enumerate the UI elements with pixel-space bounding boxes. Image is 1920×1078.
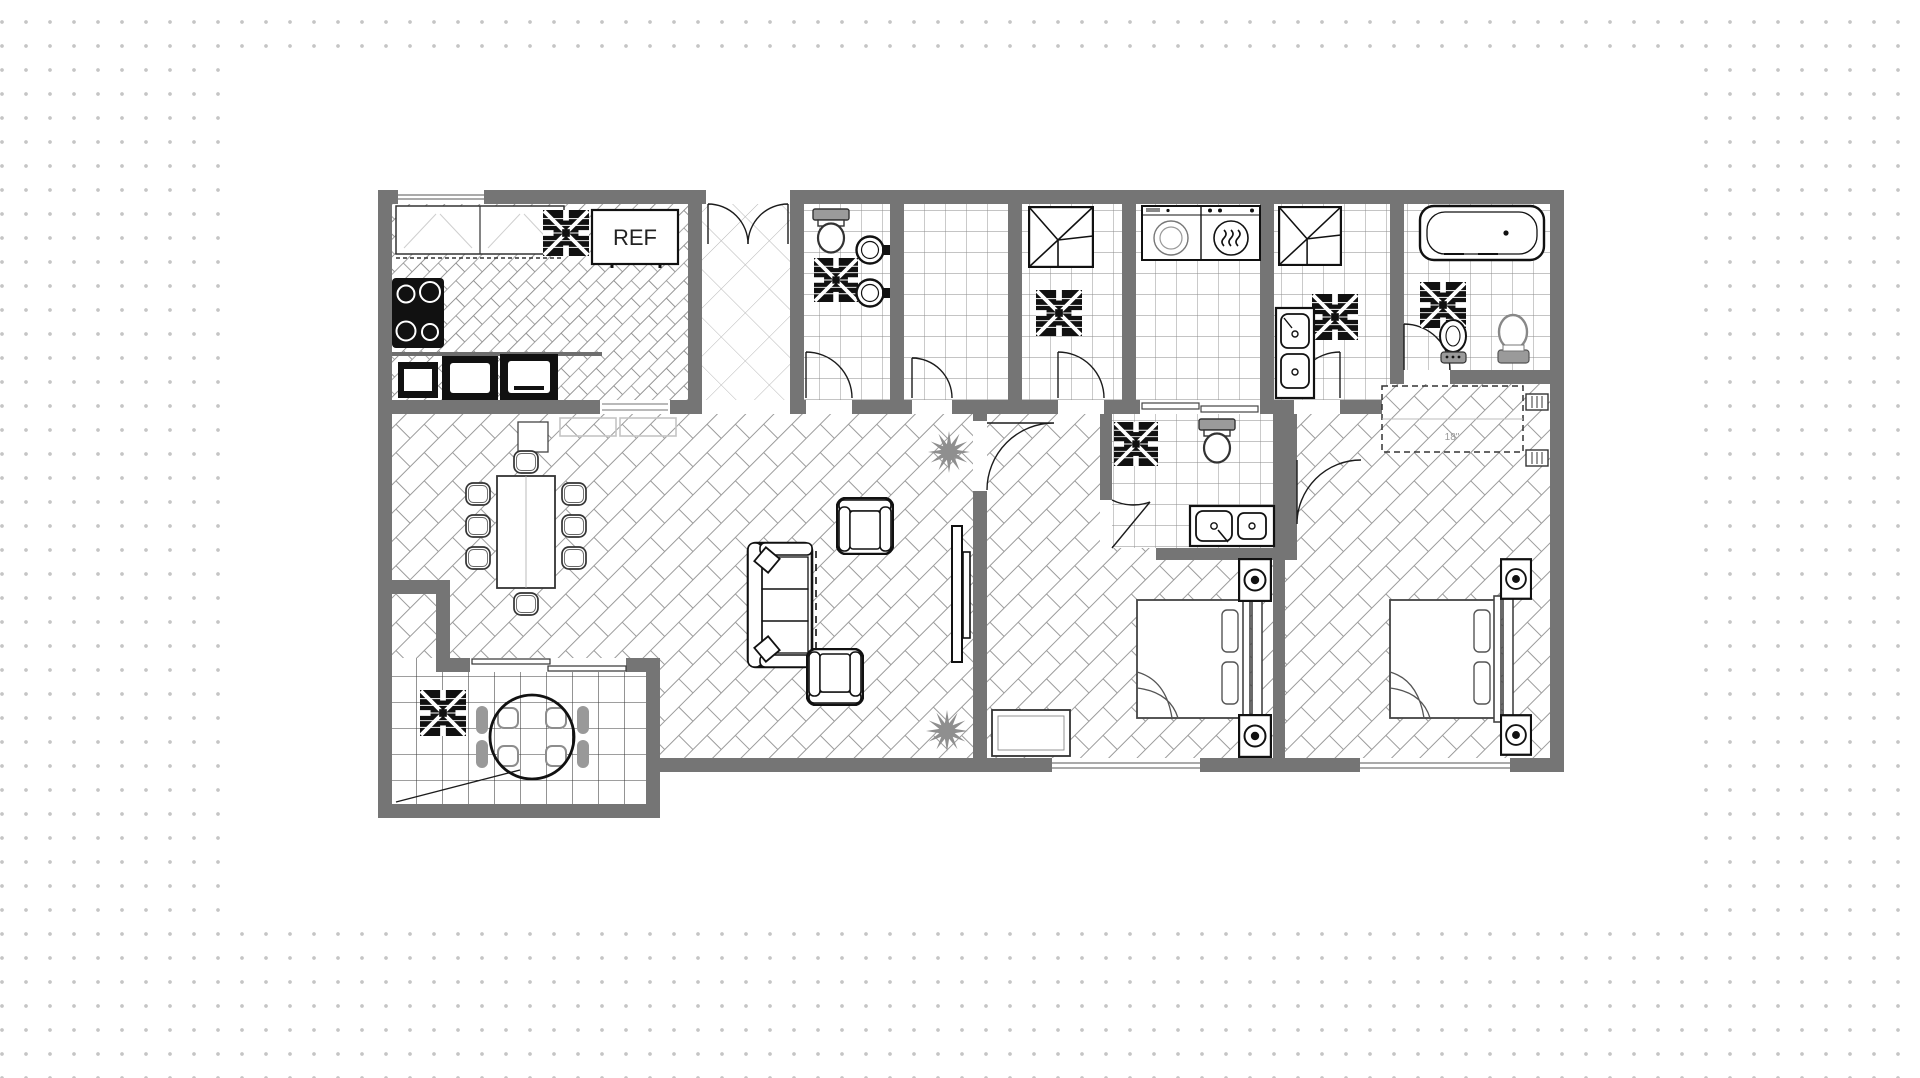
wall-kitchen-right	[688, 204, 702, 414]
sliding-panel-2	[548, 666, 626, 671]
dining-chair	[562, 483, 586, 505]
water-closet-floor	[904, 204, 1008, 400]
dining-chair	[562, 515, 586, 537]
dining-chair	[466, 515, 490, 537]
laundry-bifold-door-left	[1142, 403, 1199, 409]
wall-bath1-right	[890, 204, 904, 414]
shower-stall-symbol	[1279, 207, 1341, 265]
sliding-panel-1	[472, 659, 550, 664]
double-bed	[1137, 594, 1262, 724]
wall-patio-right	[646, 658, 660, 818]
foyer-open-passage	[702, 400, 790, 414]
bathroom-1-ceiling-fan-icon	[814, 258, 858, 302]
bidet-symbol	[1440, 320, 1466, 363]
nightstand-lamp	[1501, 559, 1531, 599]
shower-room-b-ceiling-fan-icon	[1312, 294, 1358, 340]
wall-jog-h	[378, 580, 450, 594]
shower-room-a-door-opening	[1058, 400, 1104, 414]
wall-sconce	[1526, 450, 1548, 466]
kitchen-island-stool	[518, 422, 548, 452]
wall-laundry-right	[1260, 204, 1274, 414]
main-bathroom-door-opening	[1404, 370, 1450, 384]
ensuite-door-opening	[1100, 500, 1112, 548]
dresser	[992, 710, 1070, 756]
kitchen-pass-through	[600, 400, 670, 414]
wall-showera-right	[1122, 204, 1136, 414]
wall-bedrooms-divider-upper	[1273, 414, 1297, 560]
double-bed	[1390, 594, 1513, 724]
armchair	[807, 649, 863, 705]
patio-ceiling-fan-icon	[420, 690, 466, 736]
dining-chair	[466, 547, 490, 569]
dining-chair	[466, 483, 490, 505]
stove	[392, 278, 444, 348]
sofa	[748, 543, 816, 667]
bathroom-1-door-opening	[806, 400, 852, 414]
wall-right	[1550, 190, 1564, 772]
ensuite-ceiling-fan-icon	[1114, 422, 1158, 466]
dining-chair	[562, 547, 586, 569]
bathtub-symbol	[1420, 206, 1544, 260]
shower-stall-symbol	[1029, 207, 1093, 267]
wall-patio-bottom	[378, 804, 660, 818]
kitchen-window	[398, 190, 484, 204]
floor-plan-drawing: REF	[0, 0, 1920, 1078]
closet: 18"	[1382, 386, 1523, 452]
shower-room-b-door-opening	[1294, 400, 1340, 414]
double-basin-cabinet	[1276, 308, 1314, 398]
bedroom-1-door-opening	[973, 421, 987, 491]
wall-left	[378, 190, 392, 594]
shower-room-a-ceiling-fan-icon	[1036, 290, 1082, 336]
laundry	[1142, 206, 1260, 260]
wall-sconce	[1526, 394, 1548, 410]
laundry-bifold-door-right	[1201, 406, 1258, 412]
entry-door-opening	[706, 190, 790, 204]
upper-cabinets	[396, 206, 564, 258]
dining-chair	[514, 593, 538, 615]
kitchen-ceiling-fan-icon	[543, 210, 589, 256]
wall-ensuite-left	[1100, 414, 1112, 500]
wall-mainbath-left	[1390, 204, 1404, 384]
wall-top	[378, 190, 1564, 204]
wall-patio-left	[378, 594, 392, 818]
water-closet-door-opening	[912, 400, 952, 414]
nightstand-lamp	[1501, 715, 1531, 755]
wall-bedrooms-divider-lower	[1273, 560, 1285, 758]
double-sink-vanity	[1190, 506, 1274, 546]
page-background: { "canvas": {"width": 1920, "height": 10…	[0, 0, 1920, 1078]
toilet-symbol	[1498, 315, 1529, 363]
armchair	[837, 498, 893, 554]
refrigerator-label: REF	[613, 225, 657, 250]
refrigerator: REF	[592, 210, 678, 268]
bedroom-1-window	[1052, 758, 1200, 772]
nightstand-lamp	[1239, 715, 1271, 757]
wall-foyer-right	[790, 204, 804, 414]
nightstand-lamp	[1239, 559, 1271, 601]
closet-width-label: 18"	[1445, 432, 1460, 443]
bedroom-2-window	[1360, 758, 1510, 772]
dining-chair	[514, 451, 538, 473]
wall-wc-right	[1008, 204, 1022, 414]
